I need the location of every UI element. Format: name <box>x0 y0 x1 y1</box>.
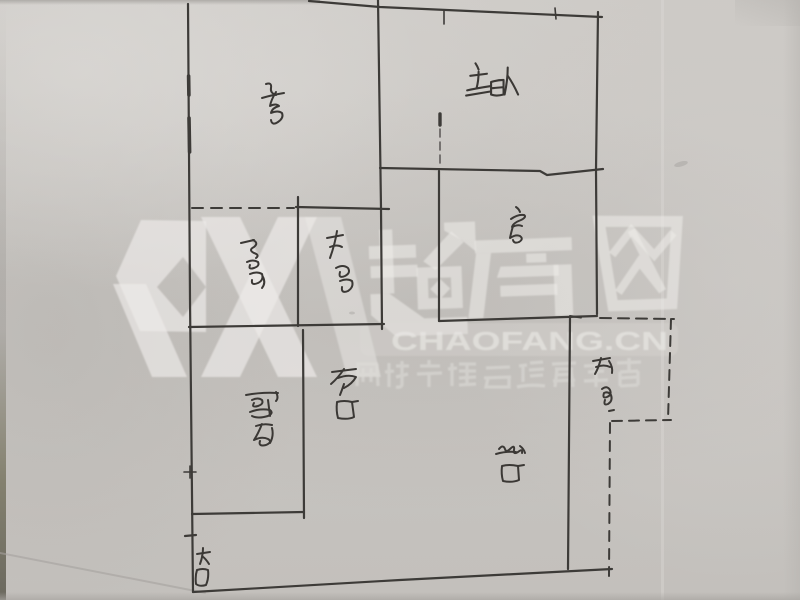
svg-text:CHAOFANG.CN: CHAOFANG.CN <box>391 326 668 356</box>
